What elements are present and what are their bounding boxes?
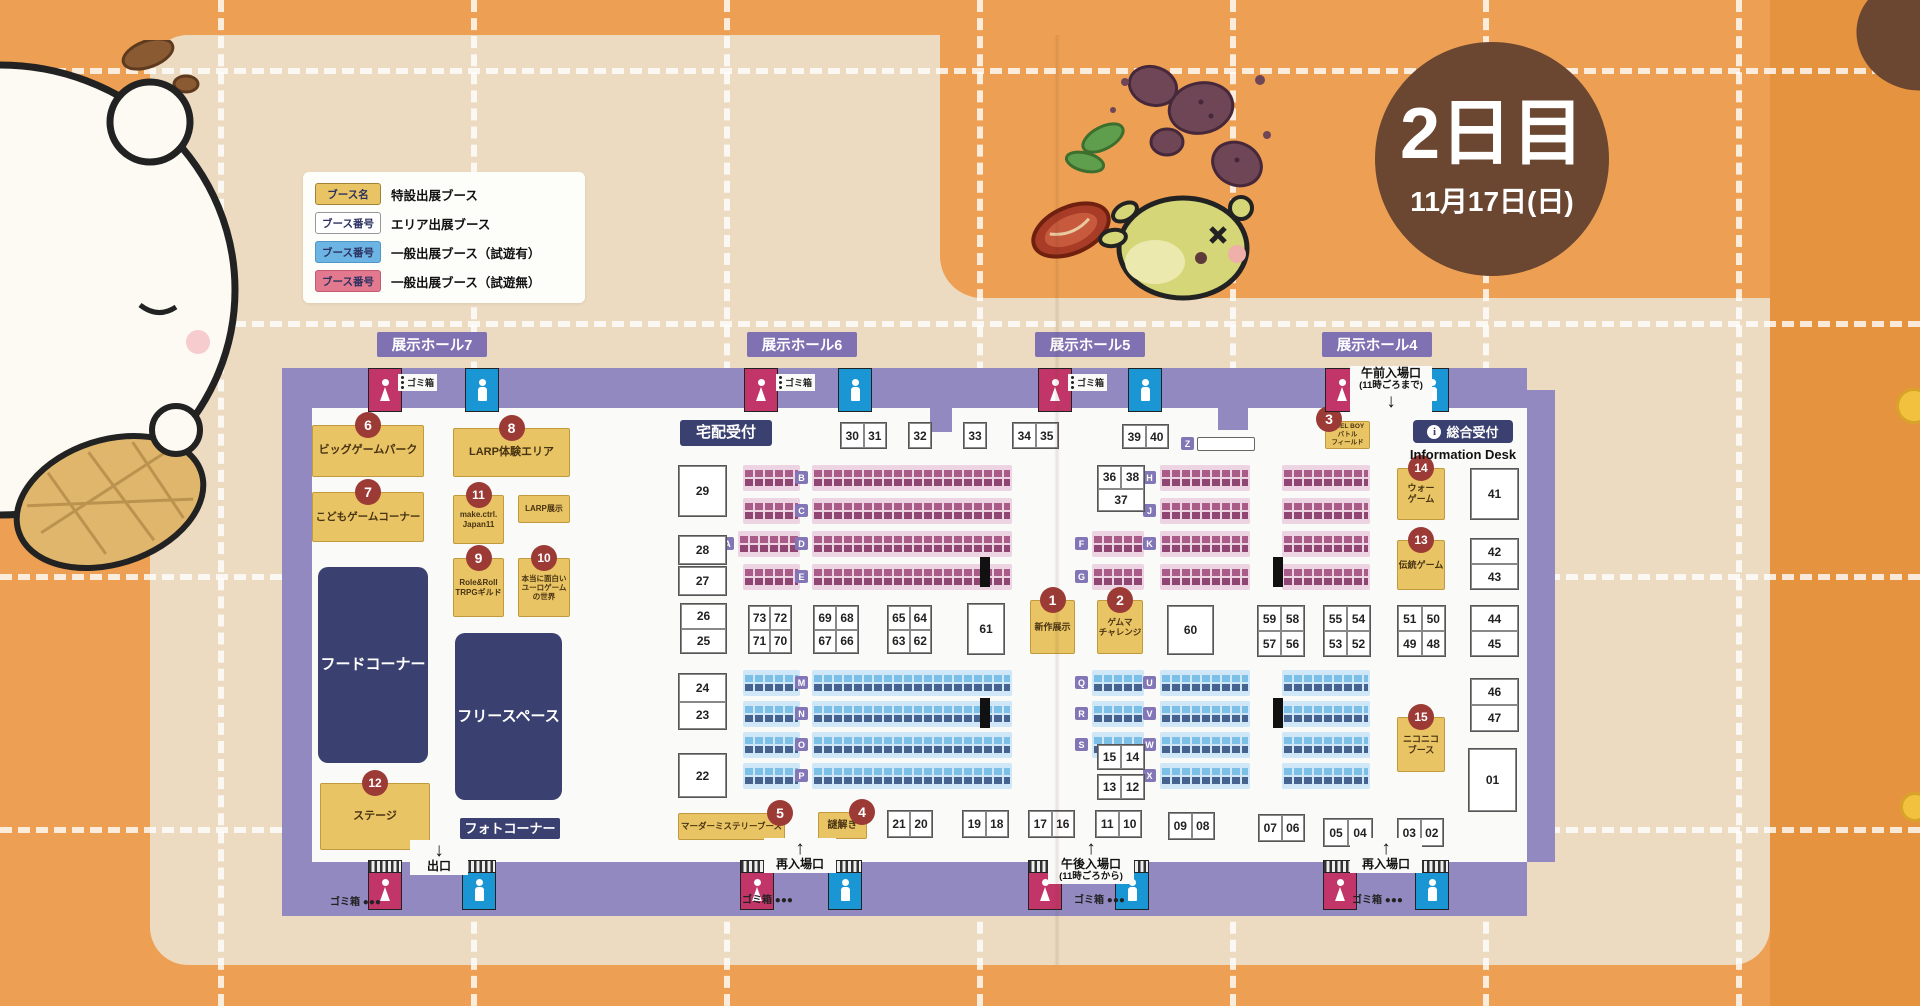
- booth-number: 67: [814, 630, 836, 654]
- booth-strip: [743, 498, 800, 524]
- booth-number: 09: [1169, 813, 1192, 839]
- booth-number: 32: [909, 423, 931, 448]
- booth-number: 38: [1121, 466, 1144, 489]
- person-icon: [755, 379, 768, 401]
- map-wall-right: [1527, 390, 1555, 862]
- booth-number: 21: [888, 811, 910, 837]
- legend-row: ブース番号一般出展ブース（試遊無）: [315, 270, 573, 292]
- booth-strip: [1282, 531, 1370, 557]
- area-booth: 1918: [962, 810, 1009, 838]
- booth-number: 18: [986, 811, 1009, 837]
- booth-number: 61: [968, 604, 1004, 654]
- booth-strip: B: [812, 465, 1012, 491]
- booth-strip: X: [1160, 763, 1250, 789]
- booth-strip: J: [1160, 498, 1250, 524]
- booth-strip: C: [812, 498, 1012, 524]
- person-head: [382, 379, 389, 386]
- special-booth: 謎解き4: [818, 812, 867, 839]
- pillar: [1273, 557, 1283, 587]
- booth-number-badge: 13: [1408, 527, 1434, 553]
- special-booth: ウォー ゲーム14: [1397, 468, 1445, 520]
- booth-number: 07: [1259, 815, 1282, 841]
- person-icon: [1428, 879, 1437, 901]
- pamphlet-crease: [1054, 35, 1060, 965]
- booth-number: 57: [1258, 631, 1281, 656]
- area-booth: 3940: [1122, 424, 1169, 449]
- booth-strip: [1160, 564, 1250, 590]
- person-icon: [475, 879, 484, 901]
- area-booth: 1312: [1097, 774, 1145, 800]
- booth-number: 63: [888, 630, 910, 654]
- hall-label: 展示ホール5: [1035, 332, 1145, 357]
- entrance-arrow-icon: ↑: [1353, 839, 1419, 858]
- booth-number: 62: [910, 630, 932, 654]
- legend-row: ブース番号一般出展ブース（試遊有）: [315, 241, 573, 263]
- booth-number: 14: [1121, 745, 1144, 769]
- booth-strip: [743, 465, 800, 491]
- pillar: [1273, 698, 1283, 728]
- booth-number: 19: [963, 811, 986, 837]
- person-body: [1039, 887, 1052, 901]
- booth-number-badge: 6: [355, 412, 381, 438]
- booth-number: 65: [888, 606, 910, 630]
- booth-strip: A: [738, 531, 800, 557]
- booth-number: 70: [770, 630, 791, 654]
- person-head: [754, 879, 761, 886]
- trash-bin-label: ゴミ箱 ●●●: [330, 893, 381, 908]
- booth-number: 73: [749, 606, 770, 630]
- person-icon: [1334, 879, 1347, 901]
- area-booth: 0706: [1258, 814, 1305, 842]
- special-booth-label: 新作展示: [1034, 622, 1070, 633]
- legend-label: 特設出展ブース: [391, 185, 478, 204]
- information-desk-en-label: Information Desk: [1400, 447, 1526, 462]
- special-booth: ビッグゲームパーク6: [312, 425, 424, 477]
- booth-number: 49: [1398, 631, 1422, 656]
- booth-number: 40: [1146, 425, 1169, 448]
- area-booth: 28: [678, 535, 727, 565]
- person-head: [1339, 379, 1346, 386]
- row-letter-chip: S: [1075, 738, 1088, 751]
- trash-dots: [401, 376, 404, 389]
- special-booth-label: ビッグゲームパーク: [319, 444, 418, 457]
- person-body: [379, 387, 392, 401]
- stairs-hatch: [369, 861, 401, 873]
- trash-text: ゴミ箱 ●●●: [742, 891, 793, 906]
- booth-number: 31: [864, 423, 887, 448]
- special-booth: ゲムマ チャレンジ2: [1097, 600, 1143, 654]
- special-booth-label: LARP体験エリア: [469, 446, 554, 459]
- booth-strip: [743, 564, 800, 590]
- booth-number: 41: [1471, 469, 1518, 519]
- pillar: [980, 698, 990, 728]
- area-booth: 1716: [1028, 810, 1075, 838]
- legend-chip: ブース番号: [315, 212, 381, 234]
- row-letter-chip: K: [1143, 537, 1156, 550]
- row-letter-chip: M: [795, 676, 808, 689]
- booth-number: 68: [836, 606, 858, 630]
- booth-strip: [743, 732, 800, 758]
- booth-number: 25: [681, 629, 726, 654]
- area-booth: 4243: [1470, 538, 1519, 590]
- hall-label: 展示ホール4: [1322, 332, 1432, 357]
- area-booth: 0908: [1168, 812, 1215, 840]
- booth-number: 05: [1324, 819, 1348, 846]
- booth-strip: [1282, 763, 1370, 789]
- booth-number: 48: [1422, 631, 1446, 656]
- booth-number: 50: [1422, 606, 1446, 631]
- area-booth: 2120: [887, 810, 933, 838]
- booth-number: 20: [910, 811, 932, 837]
- person-body: [841, 887, 850, 901]
- booth-strip: U: [1160, 670, 1250, 696]
- special-booth: 伝統ゲーム13: [1397, 540, 1445, 590]
- booth-number: 55: [1324, 606, 1347, 631]
- person-head: [1142, 379, 1149, 386]
- booth-strip: [1282, 465, 1370, 491]
- facility-box: フリースペース: [455, 633, 562, 800]
- booth-number-badge: 4: [849, 799, 875, 825]
- booth-number: 06: [1282, 815, 1305, 841]
- person-head: [1337, 879, 1344, 886]
- day-title: 2日目: [1400, 98, 1584, 170]
- booth-number: 29: [679, 466, 726, 516]
- person-body: [851, 387, 860, 401]
- entrance-label: ↓出口: [410, 840, 468, 875]
- booth-number: 23: [679, 702, 726, 730]
- special-booth: 本当に面白い ユーロゲーム の世界10: [518, 558, 570, 617]
- area-booth: 01: [1468, 748, 1517, 812]
- row-letter-chip: Q: [1075, 676, 1088, 689]
- booth-number: 36: [1098, 466, 1121, 489]
- booth-number-badge: 5: [767, 800, 793, 826]
- area-booth: 32: [908, 422, 932, 449]
- area-booth: 69686766: [813, 605, 859, 654]
- map-wall-tab: [930, 408, 952, 432]
- facility-box: フォトコーナー: [460, 818, 560, 839]
- special-booth: こどもゲームコーナー7: [312, 492, 424, 542]
- special-booth: DUEL BOY バトル フィールド3: [1325, 421, 1370, 449]
- booth-number-badge: 2: [1107, 587, 1133, 613]
- booth-number: 72: [770, 606, 791, 630]
- booth-strip: V: [1160, 701, 1250, 727]
- booth-number: 10: [1119, 811, 1142, 837]
- booth-number: 15: [1098, 745, 1121, 769]
- booth-number: 01: [1469, 749, 1516, 811]
- trash-bin-label: ゴミ箱 ●●●: [742, 891, 793, 906]
- booth-strip: H: [1160, 465, 1250, 491]
- booth-number: 24: [679, 674, 726, 702]
- booth-number-badge: 7: [355, 479, 381, 505]
- booth-number: 47: [1471, 705, 1518, 731]
- booth-strip: P: [812, 763, 1012, 789]
- entrance-arrow-icon: ↑: [1051, 839, 1131, 858]
- entrance-text: 再入場口: [767, 858, 833, 872]
- booth-strip: O: [812, 732, 1012, 758]
- special-booth-label: ウォー ゲーム: [1407, 483, 1434, 505]
- area-booth: 3031: [840, 422, 887, 449]
- booth-number: 60: [1168, 606, 1213, 654]
- person-head: [758, 379, 765, 386]
- date-title: 11月17日(日): [1410, 180, 1573, 220]
- area-booth: 4445: [1470, 605, 1519, 657]
- booth-number: 66: [836, 630, 858, 654]
- hall-label: 展示ホール7: [377, 332, 487, 357]
- person-head: [842, 879, 849, 886]
- booth-number: 45: [1471, 631, 1518, 656]
- booth-number-badge: 12: [362, 770, 388, 796]
- legend: ブース名特設出展ブースブース番号エリア出展ブースブース番号一般出展ブース（試遊有…: [303, 172, 585, 303]
- special-booth: make.ctrl. Japan1111: [453, 495, 504, 544]
- entrance-subtext: (11時ごろから): [1051, 872, 1131, 883]
- row-letter-chip: V: [1143, 707, 1156, 720]
- area-booth: 29: [678, 465, 727, 517]
- booth-number: 43: [1471, 564, 1518, 589]
- event-floor-map-page: 2日目 11月17日(日) ブース名特設出展ブースブース番号エリア出展ブースブー…: [0, 0, 1920, 1006]
- area-booth: 33: [963, 422, 987, 449]
- area-booth: 41: [1470, 468, 1519, 520]
- person-head: [479, 379, 486, 386]
- person-head: [852, 379, 859, 386]
- person-head: [382, 879, 389, 886]
- booth-number: 64: [910, 606, 932, 630]
- booth-number: 11: [1096, 811, 1119, 837]
- floor-map: i 総合受付 Information Desk 展示ホール7展示ホール6展示ホー…: [0, 0, 1920, 1006]
- area-booth: 61: [967, 603, 1005, 655]
- sweet-potato-mascot: [1005, 40, 1285, 320]
- special-booth-label: マーダーミステリーブース: [681, 821, 782, 831]
- trash-text: ゴミ箱 ●●●: [330, 893, 381, 908]
- information-desk-sign: i 総合受付: [1413, 420, 1513, 443]
- row-letter-chip: N: [795, 707, 808, 720]
- trash-text: ゴミ箱: [785, 376, 812, 389]
- booth-strip: [1282, 701, 1370, 727]
- booth-strip: W: [1160, 732, 1250, 758]
- person-icon: [379, 379, 392, 401]
- booth-number: 42: [1471, 539, 1518, 564]
- entrance-text: 午前入場口: [1353, 367, 1429, 381]
- legend-label: 一般出展ブース（試遊有）: [391, 243, 540, 262]
- area-booth: 22: [678, 753, 727, 798]
- entrance-label: ↑午後入場口(11時ごろから): [1048, 838, 1134, 884]
- person-icon: [478, 379, 487, 401]
- booth-number: 54: [1347, 606, 1370, 631]
- special-booth-label: make.ctrl. Japan11: [460, 510, 497, 529]
- facility-box: 宅配受付: [680, 420, 772, 446]
- trash-bin-label: ゴミ箱: [398, 374, 437, 391]
- trash-text: ゴミ箱 ●●●: [1352, 891, 1403, 906]
- row-letter-chip: O: [795, 738, 808, 751]
- special-booth-label: ステージ: [353, 810, 397, 823]
- row-letter-chip: E: [795, 570, 808, 583]
- legend-chip: ブース番号: [315, 270, 381, 292]
- mens-restroom-icon: [1128, 368, 1162, 412]
- person-body: [475, 887, 484, 901]
- booth-number-badge: 11: [466, 482, 492, 508]
- booth-strip: Q: [1092, 670, 1144, 696]
- mens-restroom-icon: [465, 368, 499, 412]
- booth-number-badge: 15: [1408, 704, 1434, 730]
- person-body: [1428, 887, 1437, 901]
- row-letter-chip: U: [1143, 676, 1156, 689]
- booth-number: 37: [1098, 489, 1144, 512]
- booth-number: 27: [679, 567, 726, 595]
- trash-text: ゴミ箱: [1077, 376, 1104, 389]
- booth-number: 12: [1121, 775, 1144, 799]
- person-icon: [1336, 379, 1349, 401]
- special-booth: Role&Roll TRPGギルド9: [453, 558, 504, 617]
- row-letter-chip: F: [1075, 537, 1088, 550]
- row-letter-chip: R: [1075, 707, 1088, 720]
- booth-number: 26: [681, 604, 726, 629]
- booth-number: 39: [1123, 425, 1146, 448]
- person-body: [1334, 887, 1347, 901]
- booth-number-badge: 8: [499, 415, 525, 441]
- person-head: [476, 879, 483, 886]
- special-booth-label: ゲムマ チャレンジ: [1099, 617, 1141, 637]
- special-booth: LARP体験エリア8: [453, 428, 570, 477]
- trash-dots: [1071, 376, 1074, 389]
- trash-bin-label: ゴミ箱 ●●●: [1352, 891, 1403, 906]
- special-booth-label: こどもゲームコーナー: [316, 511, 421, 524]
- special-booth: ニコニコ ブース15: [1397, 717, 1445, 772]
- booth-strip: [743, 701, 800, 727]
- person-icon: [841, 879, 850, 901]
- trash-bin-label: ゴミ箱 ●●●: [1074, 891, 1125, 906]
- booth-number: 52: [1347, 631, 1370, 656]
- booth-strip: D: [812, 531, 1012, 557]
- information-desk-label: 総合受付: [1446, 422, 1498, 441]
- mens-restroom-icon: [838, 368, 872, 412]
- person-body: [1141, 387, 1150, 401]
- person-body: [1128, 887, 1137, 901]
- booth-strip: F: [1092, 531, 1144, 557]
- booth-number: 13: [1098, 775, 1121, 799]
- area-booth: 4647: [1470, 678, 1519, 732]
- booth-number: 17: [1029, 811, 1052, 837]
- booth-number: 30: [841, 423, 864, 448]
- area-booth: 3435: [1012, 422, 1059, 449]
- booth-number-badge: 9: [466, 545, 492, 571]
- booth-strip: [1282, 732, 1370, 758]
- trash-dots: [779, 376, 782, 389]
- special-booth-label: 本当に面白い ユーロゲーム の世界: [522, 574, 567, 601]
- area-booth: 27: [678, 566, 727, 596]
- booth-number: 56: [1281, 631, 1304, 656]
- booth-strip: Z: [1197, 437, 1255, 451]
- booth-number: 28: [679, 536, 726, 564]
- special-booth: LARP展示: [518, 495, 570, 523]
- entrance-arrow-icon: ↓: [1353, 392, 1429, 411]
- entrance-arrow-icon: ↓: [413, 841, 465, 860]
- booth-number: 46: [1471, 679, 1518, 705]
- person-head: [1429, 879, 1436, 886]
- area-booth: 59585756: [1257, 605, 1305, 657]
- trash-text: ゴミ箱: [407, 376, 434, 389]
- booth-number: 69: [814, 606, 836, 630]
- booth-number: 51: [1398, 606, 1422, 631]
- facility-box: フードコーナー: [318, 567, 428, 763]
- special-booth-label: Role&Roll TRPGギルド: [455, 578, 501, 597]
- womens-restroom-icon: [744, 368, 778, 412]
- pillar: [980, 557, 990, 587]
- row-letter-chip: G: [1075, 570, 1088, 583]
- row-letter-chip: P: [795, 769, 808, 782]
- hall-label: 展示ホール6: [747, 332, 857, 357]
- booth-number: 02: [1421, 819, 1444, 846]
- booth-number: 59: [1258, 606, 1281, 631]
- entrance-text: 午後入場口: [1051, 858, 1131, 872]
- area-booth: 60: [1167, 605, 1214, 655]
- special-booth: 新作展示1: [1030, 600, 1075, 654]
- area-booth: 2625: [680, 603, 727, 654]
- booth-number: 58: [1281, 606, 1304, 631]
- booth-number: 34: [1013, 423, 1036, 448]
- trash-bin-label: ゴミ箱: [776, 374, 815, 391]
- booth-number: 08: [1192, 813, 1215, 839]
- area-booth: 2423: [678, 673, 727, 730]
- map-wall-tab: [1218, 408, 1248, 430]
- trash-text: ゴミ箱 ●●●: [1074, 891, 1125, 906]
- booth-strip: [1282, 564, 1370, 590]
- entrance-label: ↑再入場口: [764, 838, 836, 873]
- booth-number: 71: [749, 630, 770, 654]
- booth-strip: M: [812, 670, 1012, 696]
- day-badge: 2日目 11月17日(日): [1375, 42, 1609, 276]
- person-icon: [851, 379, 860, 401]
- row-letter-chip: Z: [1181, 437, 1194, 450]
- area-booth: 73727170: [748, 605, 792, 654]
- legend-row: ブース番号エリア出展ブース: [315, 212, 573, 234]
- row-letter-chip: B: [795, 471, 808, 484]
- entrance-arrow-icon: ↑: [767, 839, 833, 858]
- legend-label: エリア出展ブース: [391, 214, 490, 233]
- map-wall-left: [282, 368, 312, 916]
- legend-label: 一般出展ブース（試遊無）: [391, 272, 540, 291]
- booth-number: 44: [1471, 606, 1518, 631]
- special-booth-label: ニコニコ ブース: [1403, 734, 1439, 756]
- entrance-text: 出口: [413, 860, 465, 874]
- booth-strip: [743, 670, 800, 696]
- hamster-peanut-mascot: [0, 40, 280, 600]
- booth-strip: [1282, 670, 1370, 696]
- area-booth: 1110: [1095, 810, 1142, 838]
- area-booth: 363837: [1097, 465, 1145, 512]
- booth-number-badge: 1: [1040, 587, 1066, 613]
- booth-number-badge: 10: [531, 545, 557, 571]
- area-booth: 1514: [1097, 744, 1145, 770]
- legend-row: ブース名特設出展ブース: [315, 183, 573, 205]
- legend-chip: ブース番号: [315, 241, 381, 263]
- person-body: [478, 387, 487, 401]
- legend-chip: ブース名: [315, 183, 381, 205]
- special-booth-label: 伝統ゲーム: [1399, 560, 1444, 571]
- area-booth: 55545352: [1323, 605, 1371, 657]
- booth-number: 22: [679, 754, 726, 797]
- area-booth: 51504948: [1397, 605, 1446, 657]
- row-letter-chip: D: [795, 537, 808, 550]
- special-booth: マーダーミステリーブース5: [678, 813, 785, 840]
- booth-strip: [1282, 498, 1370, 524]
- row-letter-chip: C: [795, 504, 808, 517]
- womens-restroom-icon: [368, 368, 402, 412]
- entrance-label: 午前入場口(11時ごろまで)↓: [1350, 366, 1432, 412]
- person-icon: [1141, 379, 1150, 401]
- person-body: [755, 387, 768, 401]
- person-body: [1336, 387, 1349, 401]
- booth-number: 53: [1324, 631, 1347, 656]
- info-icon: i: [1427, 425, 1441, 439]
